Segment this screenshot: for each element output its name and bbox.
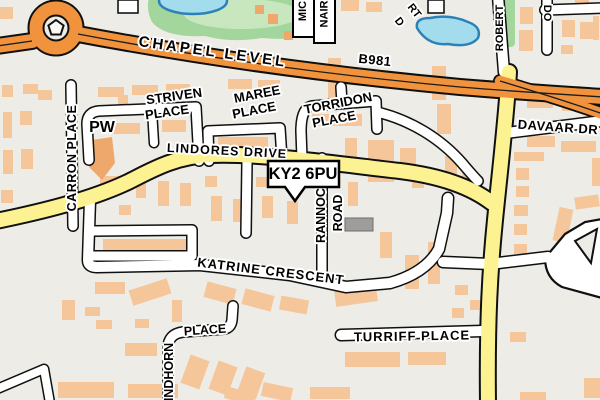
postcode-text: KY2 6PU (267, 161, 339, 187)
postcode-marker[interactable]: KY2 6PU (266, 159, 342, 204)
street-label-plate-nair: NAIR (313, 0, 336, 44)
gray-building (345, 218, 373, 231)
plate-mic-text: MIC (298, 1, 310, 21)
roundabout-island (48, 20, 63, 35)
plate-nair-text: NAIR (319, 1, 331, 28)
street-label-plate-mic: MIC (292, 0, 315, 38)
map[interactable]: CHAPEL LEVEL B981 LINDORES DRIVE CARRON … (0, 0, 600, 400)
